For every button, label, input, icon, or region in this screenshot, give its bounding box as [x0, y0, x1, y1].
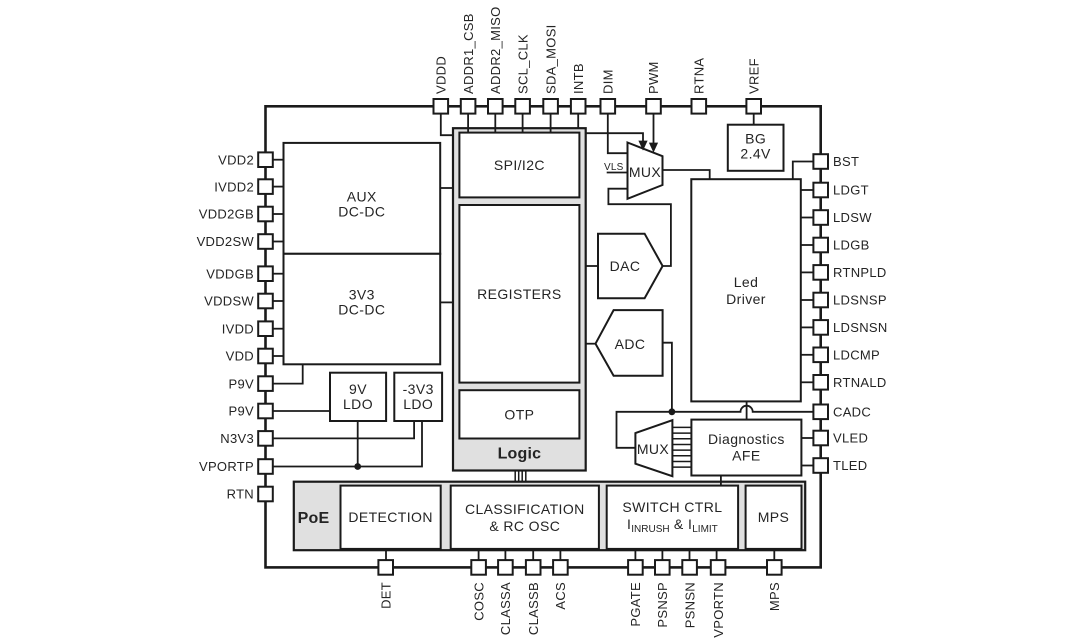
- svg-text:VDD2SW: VDD2SW: [197, 234, 255, 249]
- svg-text:VREF: VREF: [746, 58, 761, 94]
- svg-text:VPORTN: VPORTN: [711, 582, 726, 638]
- svg-text:VDDGB: VDDGB: [206, 266, 254, 281]
- svg-text:LDSNSN: LDSNSN: [833, 320, 888, 335]
- svg-text:MUX: MUX: [629, 164, 662, 180]
- svg-text:PoE: PoE: [298, 510, 330, 527]
- svg-text:LDGT: LDGT: [833, 183, 869, 198]
- svg-text:ADDR2_MISO: ADDR2_MISO: [488, 6, 503, 94]
- svg-text:2.4V: 2.4V: [740, 145, 771, 161]
- svg-text:VLS: VLS: [604, 162, 624, 173]
- svg-text:ADDR1_CSB: ADDR1_CSB: [461, 13, 476, 94]
- svg-text:CLASSB: CLASSB: [526, 582, 541, 635]
- svg-text:LDO: LDO: [403, 396, 433, 412]
- svg-text:Diagnostics: Diagnostics: [708, 431, 785, 447]
- svg-text:-3V3: -3V3: [403, 381, 434, 397]
- svg-text:PWM: PWM: [646, 61, 661, 94]
- svg-text:SWITCH CTRL: SWITCH CTRL: [622, 499, 722, 515]
- svg-text:DETECTION: DETECTION: [348, 509, 433, 525]
- svg-text:P9V: P9V: [229, 404, 255, 419]
- svg-text:CLASSA: CLASSA: [498, 582, 513, 635]
- svg-text:PSNSN: PSNSN: [682, 582, 697, 628]
- svg-text:BST: BST: [833, 154, 859, 169]
- svg-text:SDA_MOSI: SDA_MOSI: [543, 24, 558, 94]
- svg-text:9V: 9V: [349, 381, 367, 397]
- svg-text:DC-DC: DC-DC: [338, 204, 385, 220]
- svg-text:PSNSP: PSNSP: [655, 582, 670, 628]
- svg-text:ACS: ACS: [553, 582, 568, 610]
- svg-text:BG: BG: [745, 130, 766, 146]
- svg-text:DAC: DAC: [610, 258, 641, 274]
- svg-text:TLED: TLED: [833, 458, 867, 473]
- svg-text:MPS: MPS: [767, 582, 782, 611]
- svg-text:SPI/I2C: SPI/I2C: [494, 157, 545, 173]
- svg-text:VDDSW: VDDSW: [204, 294, 254, 309]
- svg-text:OTP: OTP: [504, 406, 534, 422]
- svg-text:LDGB: LDGB: [833, 238, 870, 253]
- svg-text:REGISTERS: REGISTERS: [477, 286, 562, 302]
- svg-text:LDO: LDO: [343, 396, 373, 412]
- svg-text:MUX: MUX: [637, 441, 670, 457]
- svg-text:VDD: VDD: [226, 349, 254, 364]
- svg-text:IVDD: IVDD: [222, 321, 254, 336]
- svg-text:VDDD: VDDD: [434, 56, 449, 94]
- svg-text:LDSNSP: LDSNSP: [833, 293, 887, 308]
- svg-text:VDD2: VDD2: [218, 152, 254, 167]
- svg-text:RTN: RTN: [227, 487, 254, 502]
- svg-text:LDCMP: LDCMP: [833, 348, 880, 363]
- svg-text:PGATE: PGATE: [628, 582, 643, 627]
- svg-text:DC-DC: DC-DC: [338, 302, 385, 318]
- svg-text:LDSW: LDSW: [833, 210, 872, 225]
- svg-text:AFE: AFE: [732, 448, 760, 464]
- svg-text:RTNPLD: RTNPLD: [833, 265, 887, 280]
- svg-text:AUX: AUX: [347, 189, 377, 205]
- svg-text:DET: DET: [378, 582, 393, 609]
- svg-text:RTNALD: RTNALD: [833, 375, 887, 390]
- svg-text:& RC OSC: & RC OSC: [489, 518, 560, 534]
- svg-text:VLED: VLED: [833, 431, 868, 446]
- svg-text:Driver: Driver: [726, 291, 766, 307]
- svg-text:ADC: ADC: [615, 336, 646, 352]
- svg-text:Logic: Logic: [498, 446, 542, 463]
- svg-text:RTNA: RTNA: [692, 58, 707, 94]
- svg-text:INTB: INTB: [571, 63, 586, 94]
- svg-text:CLASSIFICATION: CLASSIFICATION: [465, 501, 585, 517]
- svg-text:P9V: P9V: [229, 376, 255, 391]
- svg-text:DIM: DIM: [601, 69, 616, 94]
- svg-text:Led: Led: [734, 274, 759, 290]
- svg-text:CADC: CADC: [833, 405, 871, 420]
- svg-text:N3V3: N3V3: [220, 431, 254, 446]
- svg-text:VDD2GB: VDD2GB: [199, 207, 254, 222]
- svg-text:3V3: 3V3: [349, 287, 375, 303]
- svg-text:COSC: COSC: [471, 582, 486, 621]
- svg-text:MPS: MPS: [758, 509, 790, 525]
- svg-text:IVDD2: IVDD2: [214, 179, 254, 194]
- svg-text:SCL_CLK: SCL_CLK: [515, 34, 530, 94]
- svg-text:VPORTP: VPORTP: [199, 459, 254, 474]
